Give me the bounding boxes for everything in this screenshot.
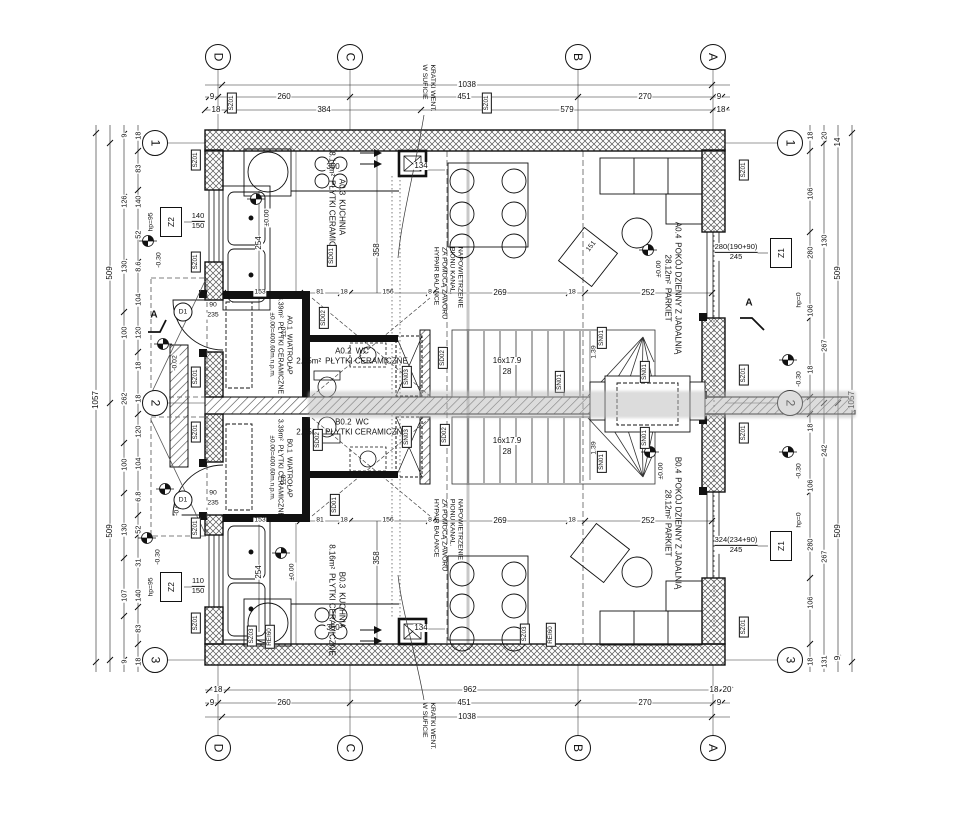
vent-note-bottom: KRATKI WENT. W SUFICIE [420, 702, 436, 749]
dim-label: 20 [820, 131, 827, 141]
span-element: A0.4 [673, 222, 682, 238]
circle-element [249, 550, 253, 554]
span-element: PARKIET [663, 288, 672, 322]
rect-element [223, 520, 270, 640]
marker-sd02: SD02 [319, 307, 329, 329]
circle-element [502, 169, 526, 193]
dim-label: 384 [316, 106, 331, 114]
kitchen-b-furniture [223, 424, 399, 646]
path-element [165, 484, 171, 490]
rect-element [702, 318, 725, 397]
div-element: B0.2WC [294, 418, 410, 428]
marker-sz03: SZ03 [520, 623, 530, 644]
dim-label: 140 [134, 194, 141, 208]
span-element: 110 [192, 576, 204, 585]
span-element: Z1 [776, 541, 786, 551]
path-element [648, 245, 654, 251]
circle-element [450, 202, 474, 226]
circle-element [502, 562, 526, 586]
marker-sz01: SZ01 [191, 612, 201, 633]
window-dim-z1-top: 280(190+90)245 [715, 243, 758, 261]
circle-element [249, 273, 253, 277]
rect-element [699, 313, 707, 321]
rect-element [244, 149, 291, 196]
room-label-a04: A0.4POKÓJ DZIENNY Z JADALNIĄ 28.12m²PARK… [662, 220, 683, 356]
dim-label: 252 [640, 517, 655, 525]
window-sill-label: hp=0 [797, 291, 804, 308]
path-element [788, 355, 794, 361]
span-element: A0.2 [335, 347, 351, 356]
marker-sn01: SN01 [597, 327, 607, 349]
rect-element [702, 414, 725, 492]
rect-element [314, 371, 340, 380]
dim-label: 130 [820, 234, 827, 248]
door-dim: 90 [208, 491, 218, 498]
rect-element [205, 607, 223, 644]
g-element [639, 245, 657, 256]
marker-sz01: SZ01 [227, 92, 237, 113]
dim-label: 106 [806, 596, 813, 610]
dim-label: 260 [276, 699, 291, 707]
span-element: B0.2 [335, 418, 351, 427]
span-element: D [211, 53, 225, 62]
axis-right-1: 1 [777, 130, 803, 156]
span-element: 3.39m² [276, 296, 283, 318]
axis-top-c: C [337, 44, 363, 70]
path-element [788, 447, 794, 453]
span-element: B [571, 744, 585, 752]
stairs-label: 16x17.9 [492, 357, 522, 365]
div-element: 3.39m²PŁYTKI CERAMICZNE [275, 417, 284, 519]
axis-top-b: B [565, 44, 591, 70]
dim-label: 106 [806, 479, 813, 493]
span-element: B0.1 [285, 438, 292, 452]
marker-sz01: SZ01 [191, 366, 201, 387]
marker-sn03: SN03 [402, 366, 412, 388]
door-dim: 235 [206, 313, 219, 320]
dim-label: 126 [120, 194, 127, 208]
circle-element [622, 218, 652, 248]
path-element [783, 360, 789, 366]
div-element: B0.3KUCHNIA [336, 542, 346, 658]
stairs-label: 28 [502, 448, 513, 456]
dim-label: 18 [716, 106, 727, 114]
span-element: 150 [192, 586, 205, 596]
dim-label: 106 [806, 304, 813, 318]
dim-label: 81 [315, 290, 325, 297]
path-element [281, 548, 287, 554]
level-label: -0.30 [157, 251, 164, 269]
dim-label: 81 [315, 518, 325, 525]
dim-label: 153 [253, 518, 266, 525]
dim-label: 18 [709, 686, 720, 694]
watermark [308, 391, 856, 418]
section-mark-label: A [150, 310, 157, 321]
window-tag-z1-bottom: Z1 [770, 531, 792, 561]
level-label: -0.30 [156, 548, 163, 566]
span-element: PŁYTKI CERAMICZNE [276, 445, 283, 517]
span-element: 28.12m² [663, 490, 672, 519]
div-element: B0.4POKÓJ DZIENNY Z JADALNIĄ [672, 455, 682, 591]
span-element: 8.16m² [327, 151, 336, 176]
dim-label: 1057 [92, 390, 100, 410]
marker-sn01: SN01 [597, 451, 607, 473]
div-element: A0.2WC [294, 347, 410, 357]
dim-label: 9 [209, 93, 215, 101]
level-label: -0.30 [797, 462, 804, 480]
div-element: 3.39m²PŁYTKI CERAMICZNE [275, 294, 284, 396]
dim-label: 130 [120, 260, 127, 274]
dim-label: 156 [381, 518, 394, 525]
div-element: A0.1WIATROŁAP [284, 294, 293, 396]
dim-label: 6.8 [134, 491, 141, 503]
floor-plan-drawing: D C B A D C B A 1 2 3 1 2 3 1038 9 260 4… [0, 0, 956, 823]
div-element: A0.4POKÓJ DZIENNY Z JADALNIĄ [672, 220, 682, 356]
g-element [247, 194, 265, 205]
dim-label: 120 [134, 326, 141, 340]
dim-label: 579 [559, 106, 574, 114]
marker-sz01: SZ01 [739, 422, 749, 443]
room-label-a01: A0.1WIATROŁAP 3.39m²PŁYTKI CERAMICZNE ±0… [267, 294, 294, 396]
dim-label: 18 [134, 131, 141, 141]
div-element: A0.3KUCHNIA [336, 149, 346, 265]
window-sill-label: hp=95 [149, 211, 156, 232]
room-label-b03: B0.3KUCHNIA 8.16m²PŁYTKI CERAMICZNE [326, 542, 347, 658]
dim-label: 100 [120, 326, 127, 340]
circle-element [450, 169, 474, 193]
rect-element [205, 352, 223, 397]
door-tag-d1-bottom: D1 [174, 491, 193, 510]
dim-label: 52 [134, 229, 141, 239]
dim-label: 18 [806, 364, 813, 374]
dim-label: 83 [134, 163, 141, 173]
g-element [779, 447, 797, 458]
dim-label: 18 [213, 686, 224, 694]
dim-label: 270 [637, 93, 652, 101]
dim-label: 104 [134, 293, 141, 307]
span-element: B [571, 53, 585, 61]
span-element: D [211, 744, 225, 753]
dim-label: 18 [134, 393, 141, 403]
span-element: Z2 [166, 582, 176, 592]
marker-sz01: SZ01 [191, 421, 201, 442]
marker-sz01: SZ01 [191, 149, 201, 170]
circle-element [249, 216, 253, 220]
path-element [251, 199, 257, 205]
dim-label: 267 [820, 339, 827, 353]
span-element: WC [356, 347, 369, 356]
path-element [645, 452, 651, 458]
div-element: 8.16m²PŁYTKI CERAMICZNE [326, 542, 336, 658]
path-element [468, 418, 580, 483]
dim-label: 83 [134, 623, 141, 633]
g-element [272, 548, 290, 559]
dim-label: 358 [373, 242, 381, 257]
span-element: 245 [715, 252, 758, 262]
dim-label: 509 [834, 265, 842, 280]
dim-label: 451 [456, 93, 471, 101]
dim-label: 18 [806, 423, 813, 433]
dim-label: 269 [492, 289, 507, 297]
dim-label: 20 [722, 686, 733, 694]
marker-rei60: REI60 [265, 625, 275, 649]
window-dim-z2-top: 140150 [192, 212, 205, 230]
span-element: POKÓJ DZIENNY Z JADALNIĄ [673, 242, 682, 354]
window-dim-z2-bottom: 110150 [192, 577, 205, 595]
span-element: 3 [148, 657, 162, 664]
marker-sz01: SZ01 [739, 159, 749, 180]
room-label-b02: B0.2WC 2.05m²PŁYTKI CERAMICZNE [294, 418, 410, 439]
dim-label: 9 [834, 655, 842, 661]
marker-sz03: SZ03 [247, 625, 257, 646]
span-element: 150 [192, 221, 205, 231]
stairs-label: 16x17.9 [492, 437, 522, 445]
dim-label: 509 [834, 523, 842, 538]
rect-element [702, 150, 725, 232]
circle-element [249, 607, 253, 611]
window-tag-z2-bottom: Z2 [160, 572, 182, 602]
dim-label: 107 [120, 588, 127, 602]
rect-element [205, 644, 725, 665]
span-element: A [706, 53, 720, 61]
dim-label: 1038 [457, 81, 477, 89]
span-element: KUCHNIA [337, 199, 346, 235]
path-element [783, 452, 789, 458]
dim-label: 9 [120, 658, 127, 664]
marker-sz01: SZ01 [191, 251, 201, 272]
dim-label: 358 [373, 550, 381, 565]
span-element: WC [356, 418, 369, 427]
window-tag-z1-top: Z1 [770, 238, 792, 268]
dim-chain-left-mid: 91261301002621001301079 [118, 132, 130, 665]
circle-element [622, 557, 652, 587]
dim-label: 156 [381, 290, 394, 297]
axis-top-d: D [205, 44, 231, 70]
span-element: 1 [148, 140, 162, 147]
span-element: WIATROŁAP [285, 457, 292, 498]
axis-bottom-b: B [565, 735, 591, 761]
span-element: 140 [192, 211, 205, 220]
window-tag-z2-top: Z2 [160, 207, 182, 237]
dim-label: 140 [134, 588, 141, 602]
path-element [634, 158, 668, 194]
span-element: PARKIET [663, 523, 672, 557]
rect-element [205, 515, 223, 535]
span-element: C [343, 53, 357, 62]
marker-sn03: SN03 [402, 426, 412, 448]
rect-element [205, 150, 223, 190]
rect-element [600, 611, 702, 645]
div-element: B0.1WIATROŁAP [284, 417, 293, 519]
dim-label: 104 [134, 457, 141, 471]
span-element: 2 [148, 400, 162, 407]
window-dim-z1-bottom: 324(234+90)245 [715, 536, 758, 554]
span-element: Z2 [166, 217, 176, 227]
dim-label: 9 [716, 93, 722, 101]
axis-right-3: 3 [777, 647, 803, 673]
marker-sn01: SN01 [555, 371, 565, 393]
span-element: A0.3 [337, 179, 346, 195]
path-element [276, 553, 282, 559]
dim-label: 252 [640, 289, 655, 297]
hall-b-wardrobe [226, 424, 252, 510]
dim-label: 18 [806, 656, 813, 666]
span-element: KUCHNIA [337, 592, 346, 628]
aeration-note-b: NAPOWIETRZENIE PIONU KANAL. ZA POMOCĄ ZA… [431, 499, 464, 571]
dim-label: 260 [276, 93, 291, 101]
rect-element [571, 524, 630, 583]
g-element [156, 484, 174, 495]
marker-sd02: SD02 [440, 424, 450, 446]
dining-set-a [448, 163, 528, 258]
path-element [158, 344, 164, 350]
g-element [154, 339, 172, 350]
circle-element [502, 202, 526, 226]
dim-label: 153 [253, 290, 266, 297]
span-element: 1 [783, 140, 797, 147]
circle-element [502, 594, 526, 618]
level-label: ±0.00 [265, 209, 272, 228]
rect-element [199, 349, 207, 357]
path-element [634, 611, 668, 645]
dim-label: 9 [120, 133, 127, 139]
span-element: 324(234+90) [715, 535, 758, 544]
span-element: Z1 [776, 248, 786, 258]
axis-top-a: A [700, 44, 726, 70]
rect-element [559, 228, 618, 287]
level-label: ±0.00 [659, 462, 666, 481]
marker-sn01: SN01 [640, 361, 650, 383]
section-mark-label: A [745, 298, 752, 309]
span-element: 245 [715, 545, 758, 555]
circle-element [450, 594, 474, 618]
dim-label: 18 [134, 656, 141, 666]
span-element: WIATROŁAP [285, 334, 292, 375]
dim-label: 280 [806, 245, 813, 259]
rect-element [199, 459, 207, 467]
level-label: ±0.00 [657, 260, 664, 279]
rect-element [310, 335, 398, 342]
dim-label: 280 [806, 537, 813, 551]
span-element: B0.4 [673, 457, 682, 473]
axis-bottom-c: C [337, 735, 363, 761]
span-element: PŁYTKI CERAMICZNE [325, 357, 408, 366]
span-element: 3.39m² [276, 419, 283, 441]
span-element: A0.1 [285, 315, 292, 329]
div-element: 28.12m²PARKIET [662, 220, 672, 356]
hall-a-wardrobe [226, 302, 252, 388]
room-label-a02: A0.2WC 2.05m²PŁYTKI CERAMICZNE [294, 347, 410, 368]
path-element [147, 533, 153, 539]
span-element: 28.12m² [663, 255, 672, 284]
dim-chain-left-inner: 1883140528.610412018181201046.8523114083… [132, 132, 144, 665]
dim-label: 100 [120, 457, 127, 471]
dim-label: 254 [255, 564, 263, 579]
div-element: 2.05m²PŁYTKI CERAMICZNE [294, 428, 410, 438]
marker-sd01: SD01 [330, 494, 340, 516]
dim-label: 18 [567, 518, 577, 525]
marker-rei60: REI60 [546, 623, 556, 647]
window-sill-label: hp=0 [797, 511, 804, 528]
axis-left-1: 1 [142, 130, 168, 156]
span-element: 3 [783, 657, 797, 664]
path-element [148, 236, 154, 242]
span-element: A [706, 744, 720, 752]
marker-sz01: SZ01 [739, 364, 749, 385]
dim-label: 267 [820, 549, 827, 563]
dim-label: 270 [637, 699, 652, 707]
dim-label: 1038 [457, 713, 477, 721]
dim-label: 130 [120, 523, 127, 537]
marker-sd01: SD01 [327, 245, 337, 267]
level-label: -0.30 [797, 370, 804, 388]
dim-label: 9 [209, 699, 215, 707]
marker-sz01: SZ01 [739, 616, 749, 637]
span-element: POKÓJ DZIENNY Z JADALNIĄ [673, 477, 682, 589]
dim-label: 18 [211, 106, 222, 114]
dim-label: 509 [106, 523, 114, 538]
dim-label: 120 [134, 424, 141, 438]
dim-label: 9 [716, 699, 722, 707]
rect-element [205, 130, 725, 151]
span-element: PŁYTKI CERAMICZNE [327, 573, 336, 656]
span-element: PŁYTKI CERAMICZNE [325, 428, 408, 437]
div-element: ±0.00=400.60m.n.p.m. [267, 294, 275, 396]
span-element: C [343, 744, 357, 753]
dim-label: 18 [567, 290, 577, 297]
room-label-b01: B0.1WIATROŁAP 3.39m²PŁYTKI CERAMICZNE ±0… [267, 417, 294, 519]
rect-element [702, 578, 725, 644]
g-element [779, 355, 797, 366]
axis-bottom-a: A [700, 735, 726, 761]
dim-label: 18 [339, 518, 349, 525]
rect-element [310, 471, 398, 478]
level-label: ±0.00 [290, 563, 297, 582]
rect-element [600, 158, 702, 194]
span-element: 2.05m² [296, 357, 321, 366]
div-element: 2.05m²PŁYTKI CERAMICZNE [294, 357, 410, 367]
aeration-note-a: NAPOWIETRZENIE PIONU KANAL. ZA POMOCĄ ZA… [431, 247, 464, 319]
rect-element [205, 262, 223, 300]
level-label: -0.02 [173, 354, 180, 372]
dim-label: 254 [255, 235, 263, 250]
dim-label: 134 [413, 162, 428, 170]
dim-label: 131 [820, 654, 827, 668]
span-element: B0.3 [337, 572, 346, 588]
dim-label: 451 [456, 699, 471, 707]
span-element: 280(190+90) [715, 242, 758, 251]
stairs-label: 28 [502, 368, 513, 376]
marker-sz01: SZ01 [191, 517, 201, 538]
dim-label: 18 [134, 360, 141, 370]
dim-label: 106 [806, 187, 813, 201]
dim-label: 18 [806, 131, 813, 141]
path-element [163, 339, 169, 345]
dim-label: 134 [413, 624, 428, 632]
axis-left-2: 2 [142, 390, 168, 416]
marker-sz01: SZ01 [482, 92, 492, 113]
axis-bottom-d: D [205, 735, 231, 761]
dim-label: 31 [134, 558, 141, 568]
dim-label: 262 [120, 391, 127, 405]
dim-label: 509 [106, 265, 114, 280]
dim-label: 962 [462, 686, 477, 694]
dim-label: 18 [339, 290, 349, 297]
door-dim: 235 [206, 501, 219, 508]
span-element: 8.16m² [327, 544, 336, 569]
rect-element [205, 414, 223, 462]
dim-label: 52 [134, 525, 141, 535]
